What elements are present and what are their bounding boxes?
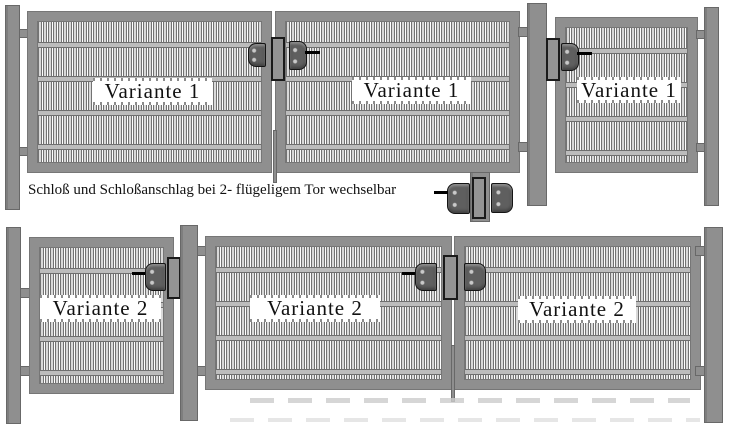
lock-handle-icon — [577, 52, 592, 55]
variant-label-text: Variante 1 — [105, 79, 201, 104]
lock-strike-plate — [443, 255, 458, 300]
variant-label: Variante 1 — [577, 77, 681, 103]
variant-label-text: Variante 2 — [267, 296, 363, 321]
fence-post-top-left — [5, 5, 20, 210]
variant-label-text: Variante 2 — [529, 297, 625, 322]
fence-post-top-right — [704, 7, 719, 206]
drop-rod — [451, 345, 455, 402]
variant-label-text: Variante 1 — [364, 78, 460, 103]
lock-strike-plate — [271, 37, 285, 81]
lock-handle-icon — [402, 272, 416, 275]
fence-post-bottom-middle — [180, 225, 198, 421]
gate-variants-diagram: Variante 1 Variante 1 Variante 1 Schloß … — [0, 0, 729, 430]
lock-body-icon — [145, 263, 166, 291]
lock-handle-icon — [132, 272, 146, 275]
fence-post-bottom-right — [704, 227, 723, 423]
lock-keeper-icon — [248, 43, 266, 67]
variant-label-text: Variante 2 — [53, 296, 149, 321]
lock-handle-icon — [305, 51, 320, 54]
variant-label: Variante 2 — [250, 295, 380, 322]
lock-body-icon — [447, 183, 470, 214]
lock-body-icon — [561, 43, 579, 71]
lock-body-icon — [415, 263, 437, 291]
variant-label: Variante 2 — [40, 295, 161, 322]
lock-strike-plate — [546, 38, 560, 81]
lock-handle-icon — [434, 191, 448, 194]
lock-keeper-icon — [491, 183, 513, 213]
caption-text: Schloß und Schloßanschlag bei 2- flügeli… — [28, 182, 396, 199]
fence-post-top-middle — [527, 3, 547, 206]
variant-label-text: Variante 1 — [581, 78, 677, 103]
variant-label: Variante 2 — [518, 296, 636, 323]
lock-body-icon — [289, 41, 307, 70]
ground-shadow — [230, 418, 700, 422]
lock-keeper-icon — [464, 263, 486, 291]
fence-post-bottom-left — [6, 227, 21, 424]
lock-strike-plate — [472, 177, 486, 219]
variant-label: Variante 1 — [93, 78, 212, 105]
drop-rod — [273, 130, 277, 183]
lock-strike-plate — [167, 257, 181, 299]
ground-shadow — [250, 398, 690, 403]
variant-label: Variante 1 — [352, 77, 471, 104]
